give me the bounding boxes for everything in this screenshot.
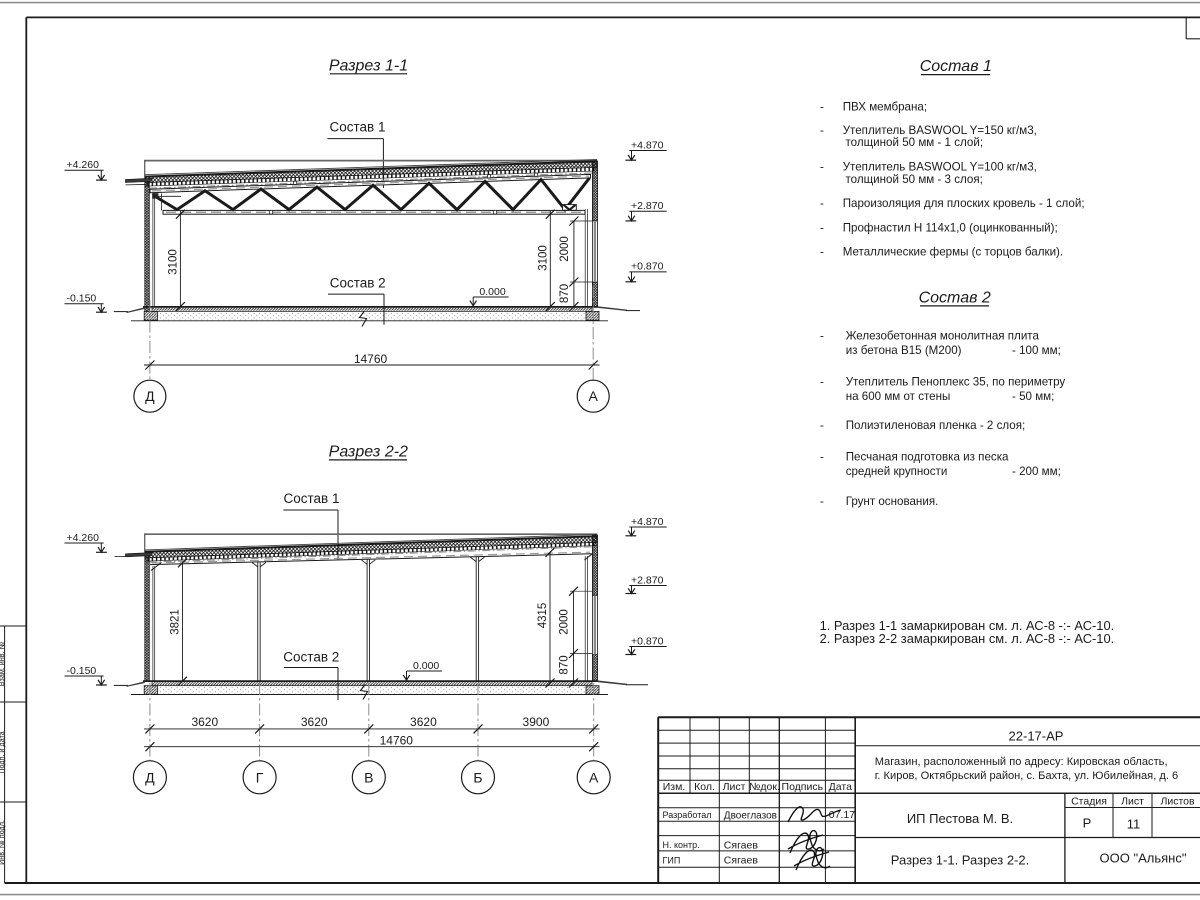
svg-text:+2.870: +2.870	[631, 574, 664, 586]
svg-text:Состав 2: Состав 2	[919, 289, 991, 306]
svg-text:870: 870	[559, 284, 571, 303]
svg-text:+4.260: +4.260	[67, 159, 100, 171]
svg-text:-: -	[820, 197, 824, 210]
svg-text:Р: Р	[1083, 816, 1092, 831]
svg-text:Взам. инв. №: Взам. инв. №	[0, 641, 6, 686]
svg-text:Б: Б	[473, 769, 482, 785]
svg-text:средней крупности: средней крупности	[846, 465, 948, 478]
svg-text:11: 11	[1127, 817, 1141, 832]
svg-text:г. Киров, Октябрьский район, с: г. Киров, Октябрьский район, с. Бахта, у…	[875, 770, 1178, 782]
svg-text:+4.260: +4.260	[67, 532, 100, 544]
svg-text:Состав 2: Состав 2	[330, 275, 386, 290]
svg-text:на 600 мм от стены: на 600 мм от стены	[846, 390, 951, 403]
svg-text:+2.870: +2.870	[631, 200, 664, 212]
svg-text:Разработал: Разработал	[663, 810, 712, 820]
svg-text:- 200 мм;: - 200 мм;	[1012, 465, 1061, 478]
svg-text:07.17: 07.17	[829, 809, 855, 821]
svg-text:14760: 14760	[380, 733, 414, 747]
svg-text:2. Разрез 2-2 замаркирован см.: 2. Разрез 2-2 замаркирован см. л. АС-8 -…	[820, 631, 1115, 646]
svg-text:Инв. № подл.: Инв. № подл.	[0, 820, 6, 865]
svg-text:Состав 1: Состав 1	[330, 120, 386, 135]
svg-text:Кол.: Кол.	[694, 781, 715, 793]
svg-text:-: -	[820, 124, 824, 137]
svg-text:ООО "Альянс": ООО "Альянс"	[1100, 851, 1187, 866]
svg-text:3821: 3821	[170, 609, 182, 635]
svg-text:В: В	[364, 769, 373, 785]
svg-text:Д: Д	[145, 388, 155, 404]
svg-text:0.000: 0.000	[413, 660, 439, 672]
svg-text:-: -	[820, 419, 824, 432]
svg-text:Полиэтиленовая пленка - 2 слоя: Полиэтиленовая пленка - 2 слоя;	[846, 419, 1026, 432]
svg-text:3100: 3100	[168, 249, 180, 275]
svg-text:Листов: Листов	[1160, 795, 1195, 807]
svg-text:Утеплитель BASWOOL Y=100 кг/м3: Утеплитель BASWOOL Y=100 кг/м3,	[843, 161, 1037, 174]
svg-text:Изм.: Изм.	[663, 781, 686, 793]
svg-text:Состав 1: Состав 1	[920, 58, 992, 75]
svg-text:-: -	[820, 101, 824, 114]
svg-text:Песчаная подготовка из песка: Песчаная подготовка из песка	[846, 451, 1009, 464]
svg-text:2000: 2000	[559, 609, 571, 635]
svg-text:-: -	[820, 376, 824, 389]
svg-text:22-17-АР: 22-17-АР	[1009, 729, 1064, 744]
svg-text:-: -	[820, 495, 824, 508]
svg-text:Лист: Лист	[723, 781, 746, 793]
svg-text:-: -	[820, 330, 824, 343]
svg-text:-0.150: -0.150	[67, 665, 97, 677]
svg-text:Д: Д	[145, 769, 155, 785]
svg-text:3620: 3620	[191, 715, 218, 729]
svg-text:-: -	[820, 246, 824, 259]
svg-text:4315: 4315	[537, 603, 549, 629]
svg-text:№док.: №док.	[749, 781, 780, 793]
svg-text:Разрез 1-1: Разрез 1-1	[329, 58, 408, 75]
svg-text:Разрез 2-2: Разрез 2-2	[329, 444, 408, 461]
svg-text:А: А	[589, 388, 599, 404]
svg-text:3620: 3620	[410, 715, 437, 729]
svg-text:Утеплитель BASWOOL Y=150 кг/м3: Утеплитель BASWOOL Y=150 кг/м3,	[843, 124, 1037, 137]
svg-text:Пароизоляция для плоских крове: Пароизоляция для плоских кровель - 1 сло…	[843, 197, 1085, 210]
svg-text:Подп. и дата: Подп. и дата	[0, 731, 6, 773]
svg-text:Состав 1: Состав 1	[284, 491, 340, 506]
svg-text:Профнастил Н 114х1,0 (оцинкова: Профнастил Н 114х1,0 (оцинкованный);	[843, 222, 1058, 235]
svg-text:+4.870: +4.870	[631, 516, 664, 528]
svg-text:-: -	[820, 161, 824, 174]
svg-text:Железобетонная монолитная пли: Железобетонная монолитная плита	[846, 330, 1040, 343]
svg-text:3100: 3100	[538, 245, 550, 271]
svg-text:ИП Пестова М. В.: ИП Пестова М. В.	[907, 811, 1013, 826]
svg-text:+0.870: +0.870	[631, 261, 664, 273]
svg-text:Дата: Дата	[829, 781, 852, 793]
svg-text:2000: 2000	[559, 236, 571, 262]
svg-text:толщиной 50 мм - 1 слой;: толщиной 50 мм - 1 слой;	[846, 136, 984, 149]
svg-text:ГИП: ГИП	[663, 855, 681, 865]
svg-text:- 50 мм;: - 50 мм;	[1012, 390, 1054, 403]
svg-text:+4.870: +4.870	[631, 139, 664, 151]
svg-text:Утеплитель Пеноплекс 35, по пе: Утеплитель Пеноплекс 35, по периметру	[846, 376, 1066, 389]
svg-text:+0.870: +0.870	[631, 635, 664, 647]
svg-text:А: А	[589, 769, 599, 785]
svg-text:ПВХ мембрана;: ПВХ мембрана;	[843, 101, 927, 114]
svg-text:Двоеглазов: Двоеглазов	[724, 810, 777, 821]
svg-text:3900: 3900	[523, 715, 550, 729]
svg-text:из бетона В15 (М200): из бетона В15 (М200)	[846, 344, 962, 357]
svg-text:толщиной 50 мм - 3 слоя;: толщиной 50 мм - 3 слоя;	[846, 173, 983, 186]
svg-text:Сягаев: Сягаев	[724, 855, 759, 867]
svg-text:Н. контр.: Н. контр.	[663, 840, 700, 850]
svg-text:Металлические фермы (с торцов: Металлические фермы (с торцов балки).	[843, 246, 1063, 259]
svg-text:- 100 мм;: - 100 мм;	[1012, 344, 1061, 357]
svg-text:Г: Г	[256, 769, 264, 785]
svg-text:Подпись: Подпись	[782, 781, 824, 793]
svg-text:870: 870	[559, 655, 571, 674]
svg-text:Разрез 1-1. Разрез 2-2.: Разрез 1-1. Разрез 2-2.	[891, 853, 1029, 868]
svg-text:Лист: Лист	[1121, 795, 1144, 807]
svg-text:-: -	[820, 222, 824, 235]
svg-text:Грунт основания.: Грунт основания.	[846, 495, 939, 508]
svg-text:14760: 14760	[354, 352, 388, 366]
svg-text:-: -	[820, 451, 824, 464]
svg-text:0.000: 0.000	[479, 286, 505, 298]
svg-text:-0.150: -0.150	[67, 293, 97, 305]
svg-text:Магазин, расположенный по адре: Магазин, расположенный по адресу: Кировс…	[875, 756, 1168, 768]
svg-text:Сягаев: Сягаев	[724, 839, 759, 851]
svg-text:3620: 3620	[301, 715, 328, 729]
svg-text:Состав 2: Состав 2	[283, 649, 339, 664]
svg-text:Стадия: Стадия	[1071, 795, 1107, 807]
